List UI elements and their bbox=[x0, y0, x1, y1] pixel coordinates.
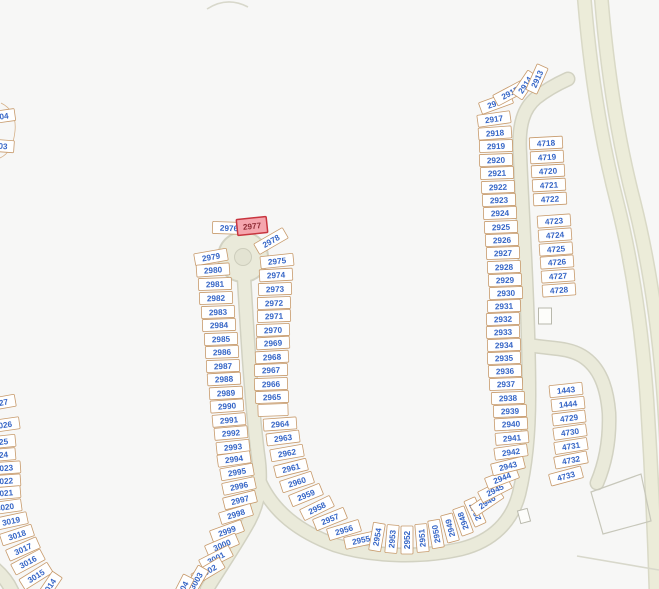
lot-number-label: 2923 bbox=[490, 196, 509, 206]
lot-number-label: 2918 bbox=[486, 128, 505, 138]
lot-number-label: 2987 bbox=[214, 362, 233, 372]
lot-2982[interactable]: 2982 bbox=[199, 291, 232, 304]
lot-number-label: 2937 bbox=[497, 380, 516, 390]
lot-3023[interactable]: 3023 bbox=[0, 461, 21, 475]
lot-number-label: 4719 bbox=[538, 153, 557, 163]
lot-2968[interactable]: 2968 bbox=[255, 350, 289, 364]
lot-2974[interactable]: 2974 bbox=[259, 268, 293, 282]
lot-number-label: 2926 bbox=[493, 236, 512, 246]
lot-2928[interactable]: 2928 bbox=[487, 260, 520, 273]
lot-number-label: 4724 bbox=[546, 230, 565, 240]
lot-2921[interactable]: 2921 bbox=[480, 166, 513, 179]
lot-2991[interactable]: 2991 bbox=[212, 413, 246, 428]
lot-number-label: 3021 bbox=[0, 488, 14, 499]
lot-number-label: 2934 bbox=[495, 341, 514, 351]
lot-3027[interactable]: 3027 bbox=[0, 394, 16, 412]
lot-2926[interactable]: 2926 bbox=[485, 233, 518, 246]
lot-2929[interactable]: 2929 bbox=[488, 273, 521, 286]
lot-number-label: 2924 bbox=[491, 209, 510, 219]
lot-number-label: 2969 bbox=[264, 339, 283, 349]
lot-2934[interactable]: 2934 bbox=[487, 338, 520, 351]
lot-2985[interactable]: 2985 bbox=[204, 332, 237, 345]
lot-4721[interactable]: 4721 bbox=[532, 178, 566, 192]
lot-2966[interactable]: 2966 bbox=[254, 377, 287, 390]
lot-number-label: 2936 bbox=[496, 367, 515, 377]
lot-number-label: 4725 bbox=[547, 244, 566, 254]
lot-number-label: 2983 bbox=[209, 308, 228, 318]
boundary-line-bottom-right bbox=[577, 556, 659, 570]
road-edge-top bbox=[207, 2, 248, 9]
lot-3026[interactable]: 3026 bbox=[0, 417, 20, 433]
lot-2924[interactable]: 2924 bbox=[483, 206, 516, 219]
lot-number-label: 2931 bbox=[495, 302, 514, 312]
lot-03[interactable]: 03 bbox=[0, 139, 14, 153]
lot-2950[interactable]: 2950 bbox=[428, 519, 445, 549]
lot-number-label: 4720 bbox=[539, 167, 558, 177]
lot-number-label: 4718 bbox=[537, 139, 556, 149]
lot-3024[interactable]: 3024 bbox=[0, 448, 16, 463]
lot-number-label: 2929 bbox=[496, 276, 515, 286]
lot-2919[interactable]: 2919 bbox=[479, 139, 512, 152]
lot-number-label: 2982 bbox=[207, 294, 226, 304]
parcel-map-svg[interactable]: 0403297629772978297929802981298229832984… bbox=[0, 0, 659, 589]
lot-number-label: 2985 bbox=[212, 335, 231, 345]
lot-number-label: 2932 bbox=[494, 315, 513, 325]
lot-2937[interactable]: 2937 bbox=[489, 377, 522, 390]
lot-number-label: 2980 bbox=[204, 265, 223, 275]
lot-number-label: 2930 bbox=[497, 289, 516, 299]
lot-number-label: 2974 bbox=[267, 271, 286, 281]
lot-number-label: 4723 bbox=[545, 216, 564, 226]
parcel-lots: 0403297629772978297929802981298229832984… bbox=[0, 64, 588, 589]
map-canvas[interactable]: 0403297629772978297929802981298229832984… bbox=[0, 0, 659, 589]
lot-number-label: 2919 bbox=[487, 142, 506, 152]
lot-number-label: 4727 bbox=[549, 271, 568, 281]
lot-number-label: 2981 bbox=[206, 280, 225, 290]
lot-number-label: 2953 bbox=[387, 529, 398, 548]
lot-number-label: 2971 bbox=[265, 312, 284, 322]
lot-number-label: 2933 bbox=[494, 328, 513, 338]
lot-2977[interactable]: 2977 bbox=[236, 216, 268, 235]
lot-2931[interactable]: 2931 bbox=[487, 299, 520, 312]
lot-4724[interactable]: 4724 bbox=[538, 228, 572, 242]
lot-04[interactable]: 04 bbox=[0, 109, 16, 124]
lot-number-label: 2972 bbox=[265, 299, 284, 309]
lot-number-label: 2965 bbox=[263, 393, 282, 403]
lot-2927[interactable]: 2927 bbox=[486, 246, 519, 259]
lot-number-label: 2989 bbox=[217, 389, 236, 399]
lot-number-label: 2920 bbox=[487, 156, 506, 166]
lot-number-label: 2935 bbox=[495, 354, 514, 364]
lot-number-label: 2964 bbox=[271, 419, 290, 429]
lot-2963[interactable]: 2963 bbox=[266, 430, 300, 446]
lot-number-label: 2922 bbox=[489, 183, 508, 193]
lot-number-label: 4728 bbox=[550, 285, 569, 295]
lot-2918[interactable]: 2918 bbox=[478, 126, 512, 140]
lot-2970[interactable]: 2970 bbox=[256, 323, 289, 336]
lot-shape bbox=[258, 403, 288, 416]
lot-2938[interactable]: 2938 bbox=[491, 391, 524, 404]
lot-2923[interactable]: 2923 bbox=[482, 193, 515, 206]
lot-number-label: 2976 bbox=[220, 224, 239, 234]
lot-1443[interactable]: 1443 bbox=[549, 382, 583, 397]
lot-number-label: 2992 bbox=[222, 428, 241, 439]
lot-number-label: 2951 bbox=[417, 528, 428, 547]
lot-2988[interactable]: 2988 bbox=[207, 372, 241, 386]
lot-2973[interactable]: 2973 bbox=[258, 282, 291, 295]
lot-4719[interactable]: 4719 bbox=[530, 150, 564, 164]
lot-4722[interactable]: 4722 bbox=[533, 192, 567, 206]
lot-number-label: 2941 bbox=[503, 433, 522, 444]
lot-2925[interactable]: 2925 bbox=[484, 220, 517, 233]
lot-3021[interactable]: 3021 bbox=[0, 486, 21, 501]
lot-number-label: 2966 bbox=[262, 380, 281, 390]
lot-2953[interactable]: 2953 bbox=[385, 525, 399, 554]
lot-number-label: 2952 bbox=[403, 530, 412, 549]
lot-2989[interactable]: 2989 bbox=[209, 386, 243, 400]
lot-number-label: 03 bbox=[0, 142, 8, 152]
lot-number-label: 2988 bbox=[215, 375, 234, 385]
lot-2971[interactable]: 2971 bbox=[257, 309, 290, 322]
lot-2972[interactable]: 2972 bbox=[257, 296, 290, 309]
lot-2992[interactable]: 2992 bbox=[214, 426, 248, 441]
lot-number-label: 3023 bbox=[0, 463, 14, 473]
lot-2932[interactable]: 2932 bbox=[486, 312, 519, 325]
lot-number-label: 4722 bbox=[541, 195, 560, 205]
lot-number-label: 2939 bbox=[501, 407, 520, 417]
lot-number-label: 2928 bbox=[495, 263, 514, 273]
lot-2981[interactable]: 2981 bbox=[198, 277, 231, 290]
lot-number-label: 2970 bbox=[264, 326, 283, 336]
lot-2986[interactable]: 2986 bbox=[205, 345, 238, 358]
lot-2980[interactable]: 2980 bbox=[196, 263, 230, 277]
building-footprint bbox=[539, 308, 552, 324]
lot-4723[interactable]: 4723 bbox=[537, 214, 571, 228]
lot-4718[interactable]: 4718 bbox=[529, 136, 563, 150]
lot-number-label: 2967 bbox=[262, 366, 281, 376]
lot-2920[interactable]: 2920 bbox=[479, 153, 512, 166]
lot-2965[interactable]: 2965 bbox=[255, 390, 288, 403]
lot-2933[interactable]: 2933 bbox=[486, 325, 519, 338]
lot-2951[interactable]: 2951 bbox=[415, 524, 429, 553]
lot-2935[interactable]: 2935 bbox=[487, 351, 520, 364]
lot-4730[interactable]: 4730 bbox=[553, 424, 587, 440]
lot-4733[interactable]: 4733 bbox=[549, 466, 584, 486]
lot-2964[interactable]: 2964 bbox=[263, 417, 297, 431]
lot-number-label: 2986 bbox=[213, 348, 232, 358]
lot-2967[interactable]: 2967 bbox=[254, 363, 287, 376]
lot-number-label: 2925 bbox=[492, 223, 511, 233]
lot-number-label: 2927 bbox=[494, 249, 513, 259]
lot-2983[interactable]: 2983 bbox=[201, 305, 234, 318]
lot-number-label: 2968 bbox=[263, 353, 282, 363]
lot-2939[interactable]: 2939 bbox=[493, 404, 526, 417]
lot-4726[interactable]: 4726 bbox=[540, 255, 574, 269]
lot-3004[interactable]: 3004 bbox=[170, 574, 194, 589]
lot-number-label: 4726 bbox=[548, 257, 567, 267]
lot-unlabeled[interactable] bbox=[258, 403, 288, 416]
lot-1444[interactable]: 1444 bbox=[551, 396, 585, 411]
lot-2930[interactable]: 2930 bbox=[489, 286, 522, 299]
lot-2941[interactable]: 2941 bbox=[495, 431, 529, 446]
lot-4729[interactable]: 4729 bbox=[552, 410, 586, 426]
lot-number-label: 2991 bbox=[220, 415, 239, 426]
lot-4725[interactable]: 4725 bbox=[539, 242, 573, 256]
lot-2990[interactable]: 2990 bbox=[210, 399, 244, 413]
lot-2984[interactable]: 2984 bbox=[202, 318, 235, 331]
lot-number-label: 2921 bbox=[488, 169, 507, 179]
lot-number-label: 2984 bbox=[210, 321, 229, 331]
lot-2962[interactable]: 2962 bbox=[270, 444, 305, 462]
lot-4727[interactable]: 4727 bbox=[541, 269, 575, 283]
lot-2922[interactable]: 2922 bbox=[481, 180, 514, 193]
lot-2952[interactable]: 2952 bbox=[401, 526, 413, 554]
lot-number-label: 2940 bbox=[502, 420, 521, 430]
lot-number-label: 3022 bbox=[0, 476, 14, 486]
lot-number-label: 2990 bbox=[218, 401, 237, 411]
cul-de-sac-island bbox=[235, 249, 252, 266]
lot-number-label: 4721 bbox=[540, 181, 559, 191]
lot-number-label: 2938 bbox=[499, 394, 518, 404]
lot-3020[interactable]: 3020 bbox=[0, 499, 22, 515]
highway bbox=[584, 0, 659, 589]
lot-number-label: 3024 bbox=[0, 450, 9, 461]
lot-2969[interactable]: 2969 bbox=[256, 336, 290, 350]
building-footprint bbox=[517, 508, 530, 523]
lot-2936[interactable]: 2936 bbox=[488, 364, 521, 377]
lot-4728[interactable]: 4728 bbox=[542, 283, 576, 297]
lot-number-label: 2973 bbox=[266, 285, 285, 295]
lot-2940[interactable]: 2940 bbox=[494, 417, 528, 431]
lot-2987[interactable]: 2987 bbox=[206, 359, 239, 372]
lot-4720[interactable]: 4720 bbox=[531, 164, 565, 178]
